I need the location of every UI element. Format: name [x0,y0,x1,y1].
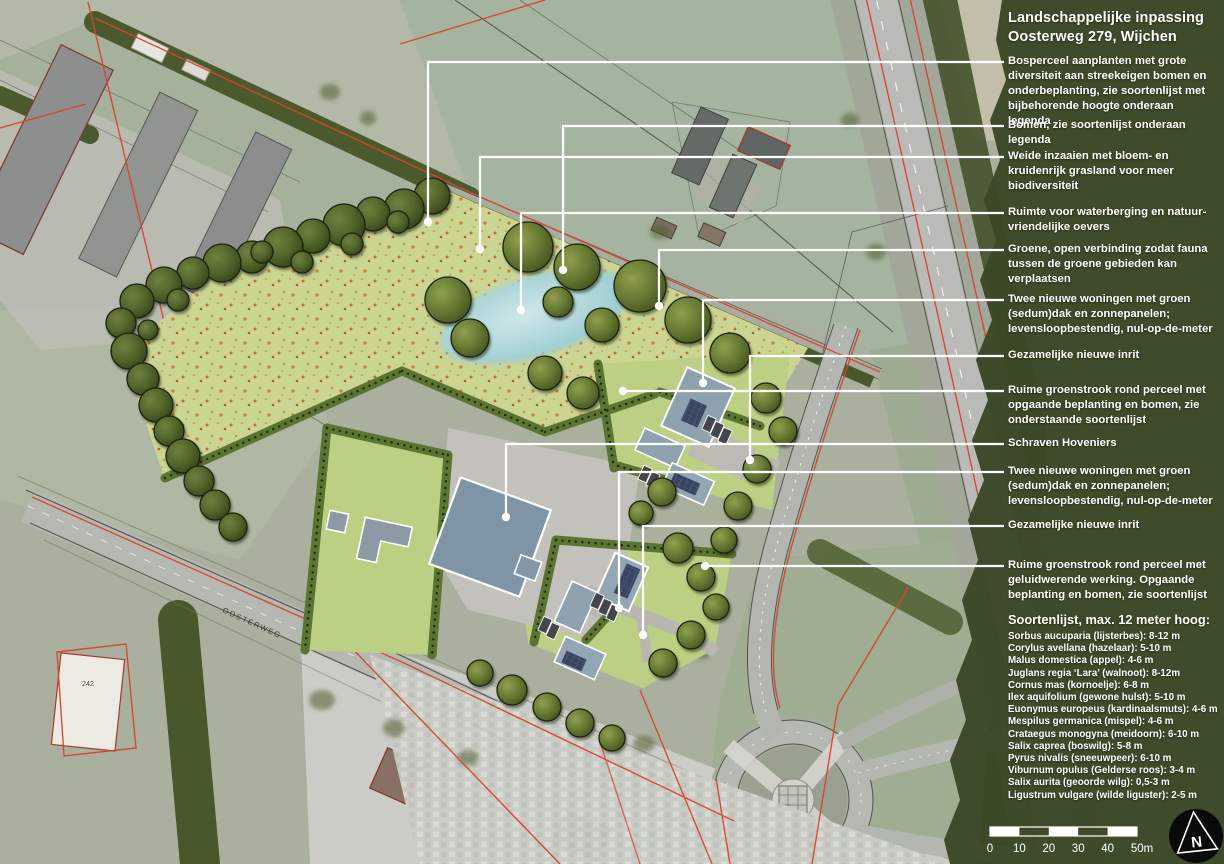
north-arrow-icon: N [1169,809,1223,863]
species-item: Corylus avellana (hazelaar): 5-10 m [1008,643,1224,655]
scale-label-40: 40 [1101,843,1114,855]
plan-title-line2: Oosterweg 279, Wijchen [1008,28,1204,47]
annotation-label: Schraven Hoveniers [1008,436,1216,451]
annotation-label: Bomen, zie soortenlijst onderaan legenda [1008,118,1216,148]
species-item: Mespilus germanica (mispel): 4-6 m [1008,716,1224,728]
annotation-label: Groene, open verbinding zodat fauna tuss… [1008,242,1216,287]
species-item: Ligustrum vulgare (wilde liguster): 2-5 … [1008,790,1224,802]
annotation-label: Ruimte voor waterberging en natuur-vrien… [1008,205,1216,235]
landscape-plan-canvas: 242 [0,0,1224,864]
species-item: Ilex aquifolium (gewone hulst): 5-10 m [1008,692,1224,704]
scale-label-30: 30 [1072,843,1085,855]
annotation-label: Twee nieuwe woningen met groen (sedum)da… [1008,464,1216,509]
annotation-label: Gezamelijke nieuwe inrit [1008,348,1216,363]
scale-label-20: 20 [1042,843,1055,855]
plan-title-line1: Landschappelijke inpassing [1008,9,1204,28]
species-item: Euonymus europeus (kardinaalsmuts): 4-6 … [1008,704,1224,716]
species-item: Malus domestica (appel): 4-6 m [1008,655,1224,667]
scale-label-10: 10 [1013,843,1026,855]
annotation-label: Ruime groenstrook rond perceel met opgaa… [1008,383,1216,428]
annotation-label: Ruime groenstrook rond perceel met gelui… [1008,558,1216,603]
annotation-label: Weide inzaaien met bloem- en kruidenrijk… [1008,149,1216,194]
species-item: Salix aurita (geoorde wilg): 0,5-3 m [1008,777,1224,789]
annotation-label: Gezamelijke nieuwe inrit [1008,518,1216,533]
species-item: Pyrus nivalis (sneeuwpeer): 6-10 m [1008,753,1224,765]
species-heading: Soortenlijst, max. 12 meter hoog: [1008,612,1224,627]
species-item: Viburnum opulus (Gelderse roos): 3-4 m [1008,765,1224,777]
building-number-label: 242 [82,681,94,688]
north-letter: N [1190,833,1203,851]
scale-label-0: 0 [987,843,993,855]
species-item: Salix caprea (boswilg): 5-8 m [1008,741,1224,753]
species-item: Crataegus monogyna (meidoorn): 6-10 m [1008,729,1224,741]
species-item: Cornus mas (kornoelje): 6-8 m [1008,680,1224,692]
plan-title: Landschappelijke inpassing Oosterweg 279… [1008,9,1204,47]
species-item: Sorbus aucuparia (lijsterbes): 8-12 m [1008,631,1224,643]
species-item: Juglans regia ‘Lara’ (walnoot): 8-12m [1008,668,1224,680]
scale-label-50m: 50m [1131,843,1153,855]
species-list: Soortenlijst, max. 12 meter hoog: Sorbus… [1008,612,1224,802]
annotation-label: Twee nieuwe woningen met groen (sedum)da… [1008,292,1216,337]
